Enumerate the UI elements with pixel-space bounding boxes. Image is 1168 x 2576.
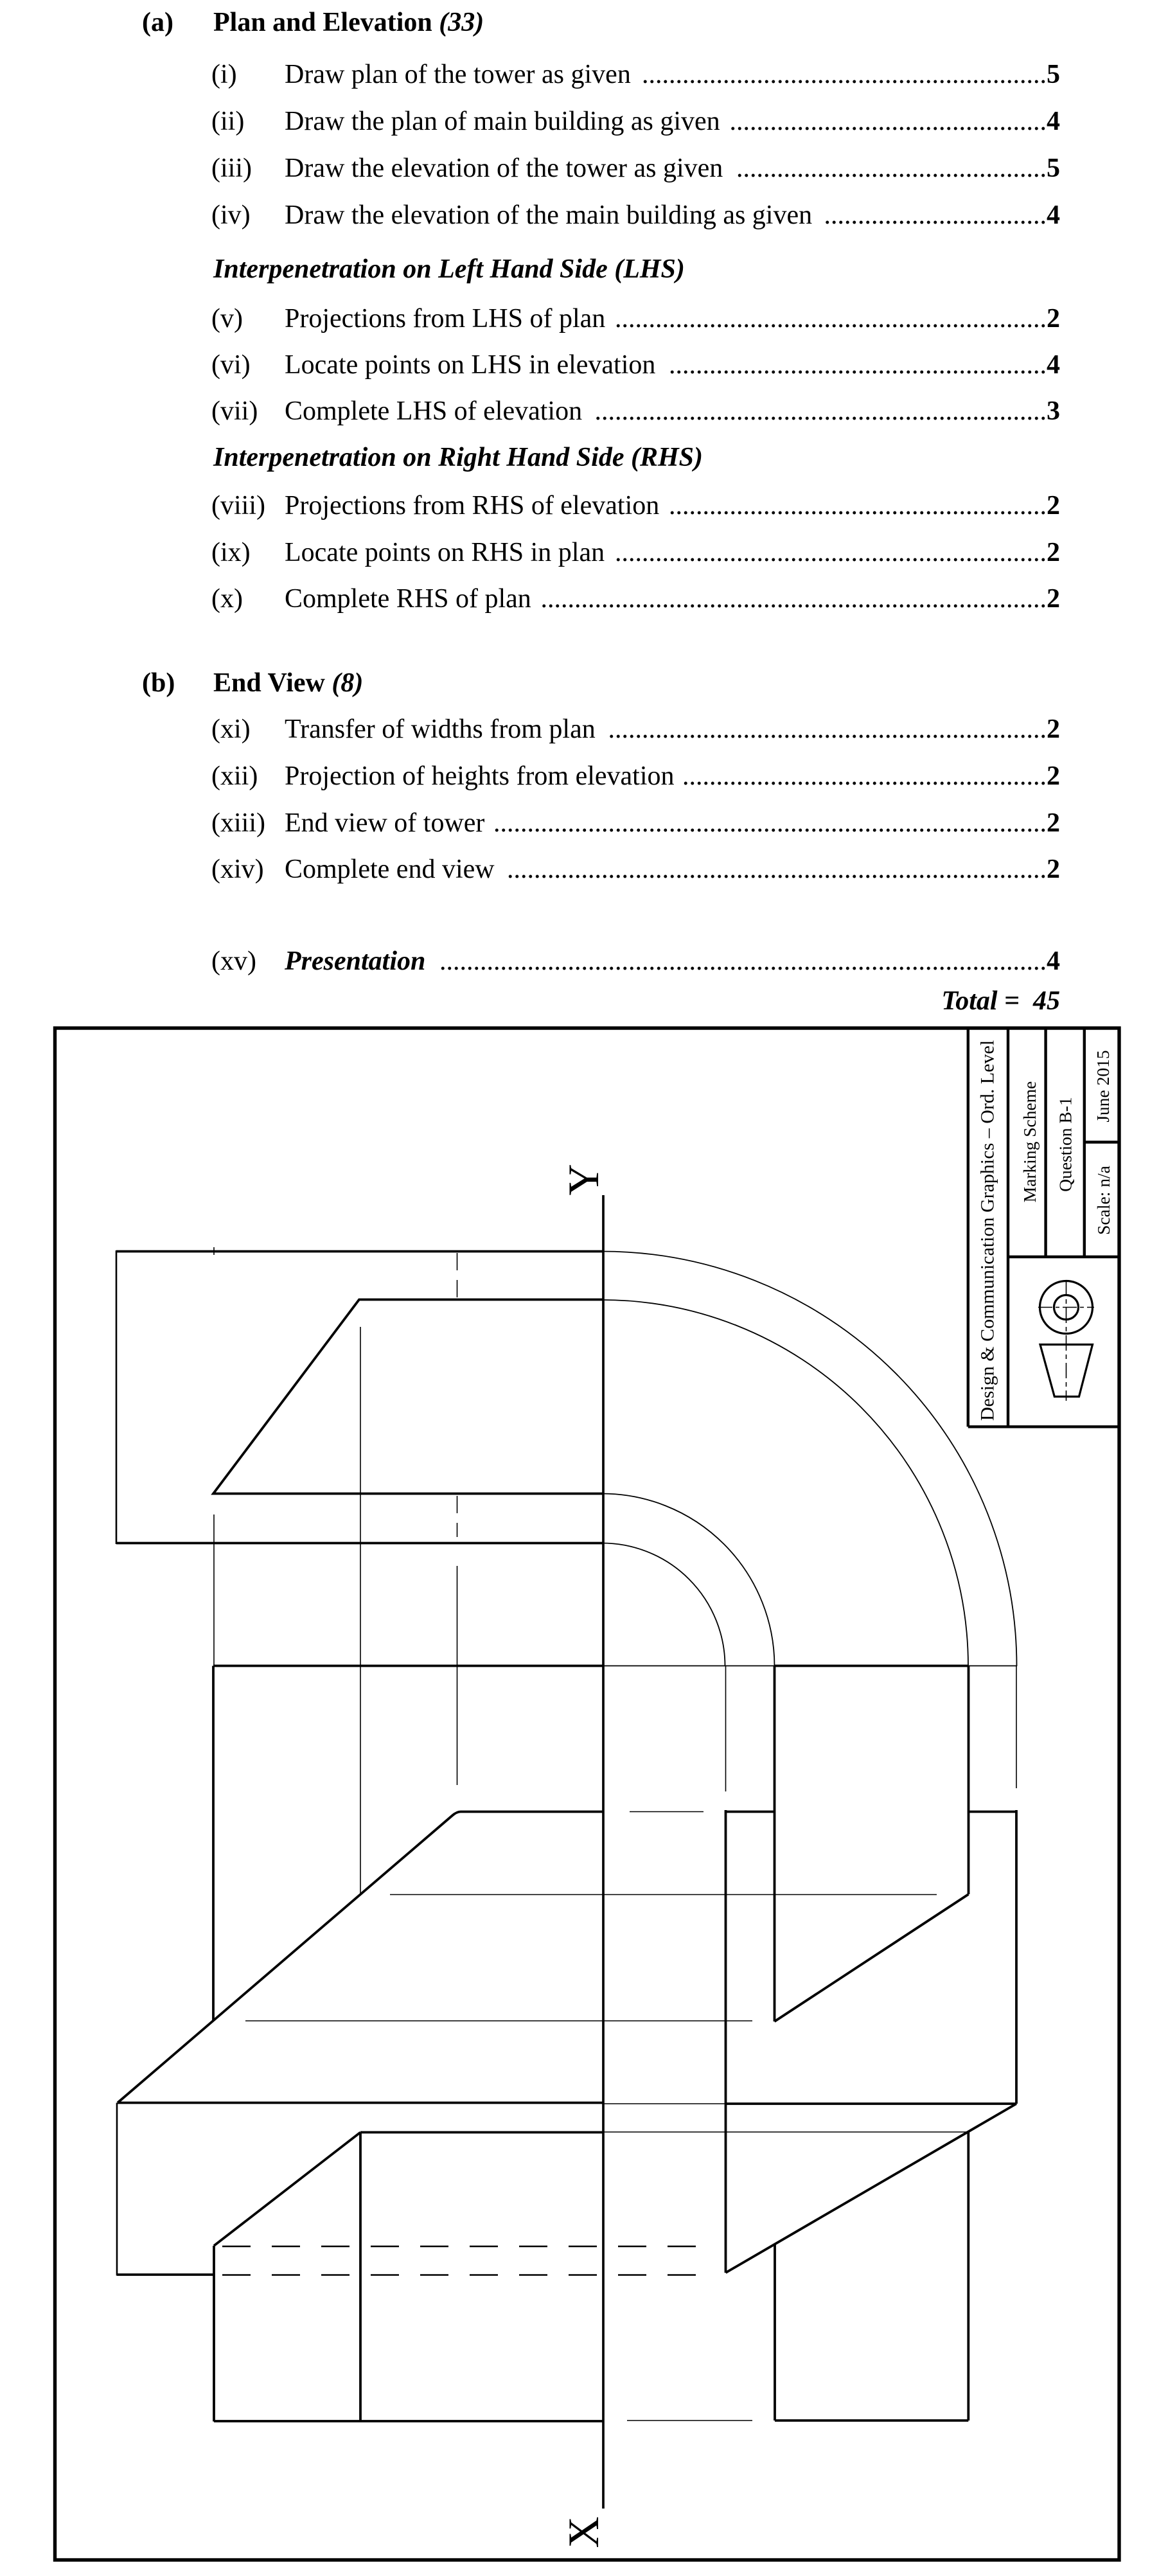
svg-text:Draw the elevation of the main: Draw the elevation of the main building … [285,200,812,230]
svg-text:Marking Scheme: Marking Scheme [1020,1081,1040,1203]
svg-text:..............................: ........................................… [730,107,1061,136]
svg-text:Interpenetration on Right Hand: Interpenetration on Right Hand Side (RHS… [213,443,703,472]
svg-text:Interpenetration on Left Hand: Interpenetration on Left Hand Side (LHS) [213,254,685,284]
svg-text:..............................: ........................................… [615,304,1060,333]
svg-text:Complete RHS of plan: Complete RHS of plan [285,584,531,614]
svg-text:..............................: .................................4 [824,200,1061,230]
svg-text:..............................: ........................................… [493,808,1060,838]
svg-text:..............................: ........................................… [439,946,1060,976]
svg-text:Presentation: Presentation [284,946,425,976]
svg-text:..............................: ........................................… [615,538,1060,567]
svg-text:Complete end view: Complete end view [285,855,495,884]
svg-text:(vi): (vi) [211,350,251,380]
svg-text:Draw the elevation of the towe: Draw the elevation of the tower as given [285,154,723,183]
svg-text:Projections from RHS of elevat: Projections from RHS of elevation [285,491,659,520]
svg-text:..............................: ........................................… [642,60,1060,89]
svg-text:(ii): (ii) [211,107,244,136]
svg-text:End view of tower: End view of tower [285,808,484,838]
svg-text:Draw the plan of main building: Draw the plan of main building as given [285,107,720,136]
svg-text:(x): (x) [211,584,243,614]
svg-text:..............................: ........................................… [682,761,1060,791]
svg-text:Complete LHS of elevation: Complete LHS of elevation [285,396,582,426]
svg-text:June 2015: June 2015 [1093,1050,1113,1122]
svg-text:Projection of heights from ele: Projection of heights from elevation [285,761,675,791]
svg-text:..............................: ........................................… [669,491,1060,520]
svg-text:X: X [559,2516,608,2548]
svg-text:End View (8): End View (8) [213,668,363,698]
svg-text:..............................: ........................................… [736,154,1060,183]
svg-text:(xiv): (xiv) [211,855,264,884]
svg-text:(xv): (xv) [211,946,256,976]
svg-text:(iv): (iv) [211,200,251,230]
svg-text:..............................: ........................................… [595,396,1061,426]
svg-text:(i): (i) [211,60,237,89]
svg-text:Total = 45: Total = 45 [941,986,1060,1016]
svg-text:Design & Communication Graphic: Design & Communication Graphics – Ord. L… [977,1040,998,1421]
svg-text:(v): (v) [211,304,243,333]
svg-text:Y: Y [559,1164,608,1195]
svg-text:(iii): (iii) [211,154,252,183]
svg-text:(viii): (viii) [211,491,265,520]
svg-text:(ix): (ix) [211,538,251,567]
svg-text:..............................: ........................................… [541,584,1061,614]
svg-text:Projections from LHS of plan: Projections from LHS of plan [285,304,605,333]
svg-text:Locate points on LHS in elevat: Locate points on LHS in elevation [285,350,655,380]
svg-text:Transfer of widths from plan: Transfer of widths from plan [285,715,596,744]
svg-text:Scale: n/a: Scale: n/a [1093,1166,1113,1235]
svg-text:(xii): (xii) [211,761,258,791]
svg-text:..............................: ........................................… [507,855,1060,884]
svg-text:Locate points on RHS in plan: Locate points on RHS in plan [285,538,605,567]
svg-text:Question B-1: Question B-1 [1056,1097,1075,1191]
svg-text:(xi): (xi) [211,715,251,744]
svg-text:(a): (a) [142,8,173,37]
svg-text:(vii): (vii) [211,396,258,426]
svg-text:Draw plan of the tower as give: Draw plan of the tower as given [285,60,631,89]
svg-text:(b): (b) [142,668,175,698]
svg-text:(xiii): (xiii) [211,808,265,838]
svg-text:..............................: ........................................… [608,715,1061,744]
svg-text:Plan and Elevation (33): Plan and Elevation (33) [213,8,484,37]
svg-text:..............................: ........................................… [669,350,1060,380]
